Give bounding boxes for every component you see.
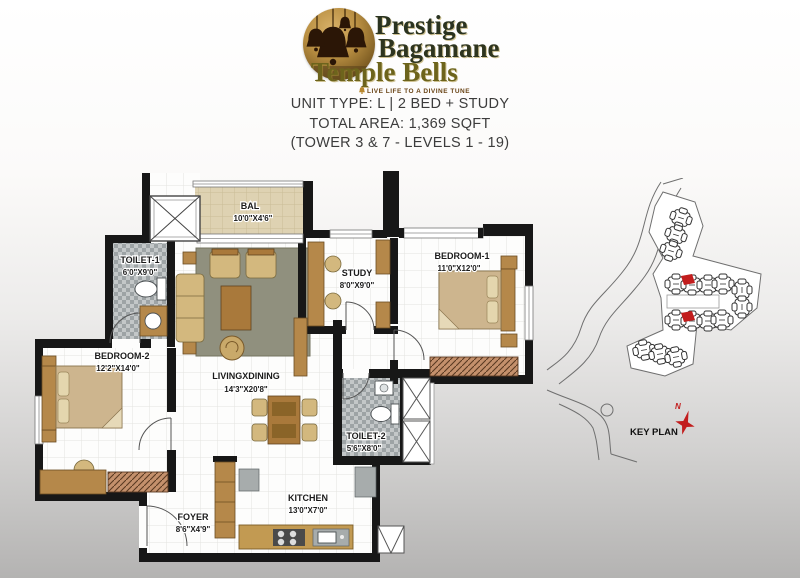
- hob: [273, 529, 305, 546]
- room-dims-bedroom2: 12'2"X14'0": [96, 364, 140, 373]
- toilet1-fixtures: [135, 278, 167, 336]
- armchair: [210, 249, 240, 278]
- cabinet: [376, 240, 390, 274]
- room-dims-foyer: 8'6"X4'9": [176, 525, 211, 534]
- sofa: [176, 274, 204, 342]
- planter: [220, 336, 244, 360]
- unit-type-line: UNIT TYPE: L | 2 BED + STUDY: [230, 95, 570, 115]
- logo: Prestige Bagamane Temple Bells LIVE LIFE…: [295, 4, 545, 96]
- room-dims-kitchen: 13'0"X7'0": [289, 506, 328, 515]
- room-label-toilet2: TOILET-2: [346, 431, 385, 441]
- total-area-line: TOTAL AREA: 1,369 SQFT: [230, 115, 570, 135]
- room-label-bal: BAL: [241, 201, 260, 211]
- window-bal-slider: [197, 234, 303, 243]
- headboard: [42, 366, 56, 430]
- console-cabinet: [294, 318, 307, 376]
- room-dims-toilet1: 6'0"X9'0": [123, 268, 158, 277]
- stool: [325, 256, 341, 272]
- coffee-table: [221, 286, 251, 330]
- unit-info: UNIT TYPE: L | 2 BED + STUDY TOTAL AREA:…: [230, 95, 570, 154]
- room-label-living: LIVINGXDINING: [212, 371, 280, 381]
- side-table: [183, 342, 196, 354]
- room-dims-toilet2: 5'6"X8'0": [347, 444, 382, 453]
- room-dims-study: 8'0"X9'0": [340, 281, 375, 290]
- elevator-shaft: [150, 196, 200, 241]
- small-duct: [378, 526, 404, 553]
- room-label-study: STUDY: [342, 268, 373, 278]
- side-table: [183, 252, 196, 264]
- corridor-edge: [430, 383, 434, 464]
- key-plan: N KEY PLAN: [545, 178, 775, 468]
- north-label: N: [675, 402, 681, 411]
- key-plan-label: KEY PLAN: [630, 427, 678, 438]
- window-study: [330, 230, 372, 238]
- window-bal-rail: [193, 181, 303, 187]
- cabinet: [376, 302, 390, 328]
- wardrobe: [108, 472, 168, 492]
- floor-plan-drawing: BAL 10'0"X4'6" TOILET-1 6'0"X9'0" STUDY …: [30, 168, 540, 578]
- desk: [308, 242, 324, 326]
- dresser: [40, 470, 106, 494]
- wardrobe: [430, 357, 518, 376]
- window-bedroom1-top: [399, 228, 483, 238]
- tower-levels-line: (TOWER 3 & 7 - LEVELS 1 - 19): [230, 134, 570, 154]
- room-label-toilet1: TOILET-1: [120, 255, 159, 265]
- headboard: [501, 269, 515, 331]
- room-label-bedroom2: BEDROOM-2: [94, 351, 149, 361]
- utility-unit: [355, 467, 376, 497]
- tall-cabinet: [215, 462, 235, 538]
- room-dims-bedroom1: 11'0"X12'0": [438, 264, 481, 273]
- stool: [325, 293, 341, 309]
- room-label-bedroom1: BEDROOM-1: [434, 251, 489, 261]
- room-dims-bal: 10'0"X4'6": [234, 214, 273, 223]
- key-plan-drawing: N KEY PLAN: [545, 178, 775, 468]
- logo-text-temple-bells: Temple Bells: [311, 59, 458, 86]
- room-label-kitchen: KITCHEN: [288, 493, 328, 503]
- room-label-foyer: FOYER: [177, 512, 209, 522]
- room-dims-living: 14'3"X20'8": [224, 385, 268, 394]
- armchair: [246, 249, 276, 278]
- sink: [313, 529, 349, 546]
- bedroom1-furniture: [430, 256, 518, 376]
- floor-plan: BAL 10'0"X4'6" TOILET-1 6'0"X9'0" STUDY …: [30, 168, 540, 578]
- window-bedroom1-right: [525, 286, 533, 340]
- brochure-page: Prestige Bagamane Temple Bells LIVE LIFE…: [0, 0, 800, 578]
- fridge: [239, 469, 259, 491]
